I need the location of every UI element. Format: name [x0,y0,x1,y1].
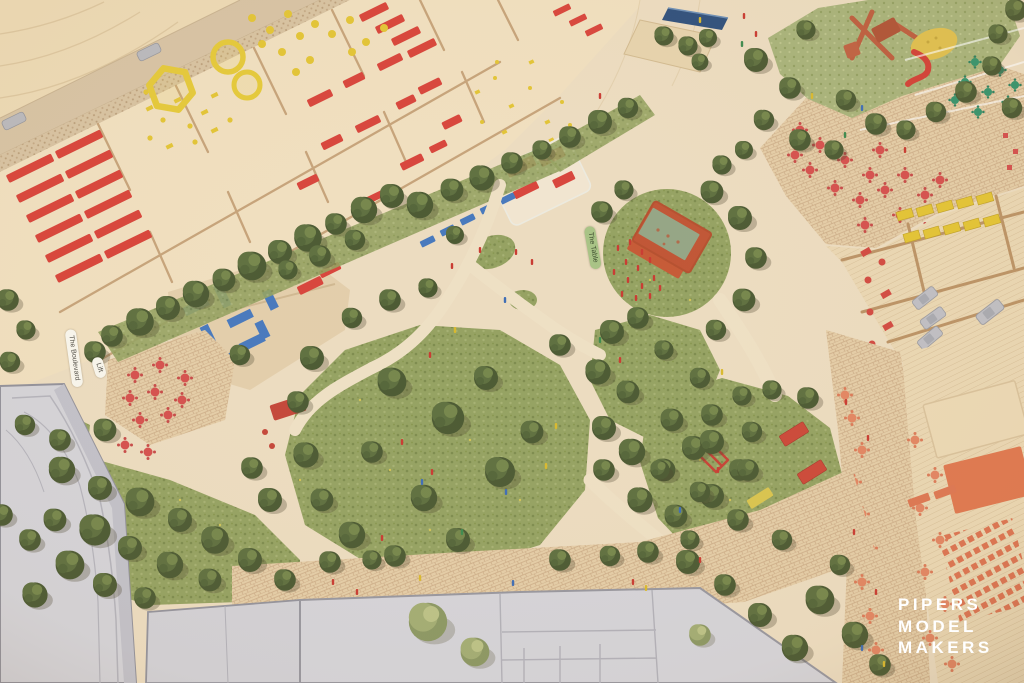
model-scene [0,0,1024,683]
watermark-line-2: MODEL [898,616,993,638]
photo-vignette [0,0,1024,683]
scale-model-photograph: The Boulevard Lift The Table PIPERS MODE… [0,0,1024,683]
watermark-line-3: MAKERS [898,637,993,659]
watermark-pipers-model-makers: PIPERS MODEL MAKERS [898,594,993,659]
watermark-line-1: PIPERS [898,594,993,616]
